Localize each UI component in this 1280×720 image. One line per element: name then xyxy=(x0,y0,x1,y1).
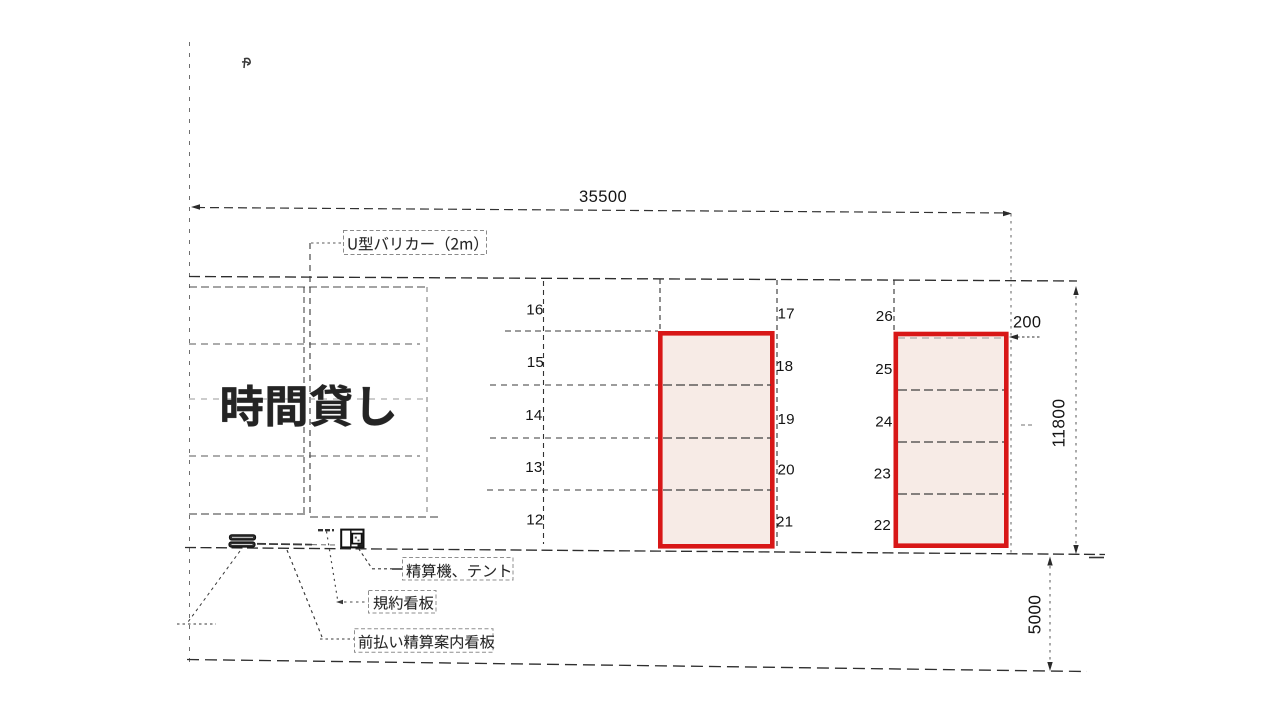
svg-text:13: 13 xyxy=(525,459,542,476)
svg-text:21: 21 xyxy=(776,514,793,531)
svg-text:24: 24 xyxy=(875,414,892,431)
svg-text:14: 14 xyxy=(525,407,542,424)
svg-text:5000: 5000 xyxy=(1025,595,1045,634)
svg-text:15: 15 xyxy=(527,354,544,371)
svg-text:200: 200 xyxy=(1013,314,1041,332)
svg-text:18: 18 xyxy=(776,358,793,375)
svg-text:11800: 11800 xyxy=(1049,398,1069,447)
svg-text:35500: 35500 xyxy=(579,187,627,206)
svg-text:20: 20 xyxy=(778,462,795,479)
svg-text:26: 26 xyxy=(876,308,893,325)
svg-text:23: 23 xyxy=(874,466,891,483)
svg-text:17: 17 xyxy=(778,306,795,323)
svg-text:12: 12 xyxy=(526,512,543,529)
svg-text:16: 16 xyxy=(526,302,543,319)
svg-text:25: 25 xyxy=(875,361,892,378)
svg-text:19: 19 xyxy=(778,411,795,428)
svg-text:22: 22 xyxy=(874,517,891,534)
